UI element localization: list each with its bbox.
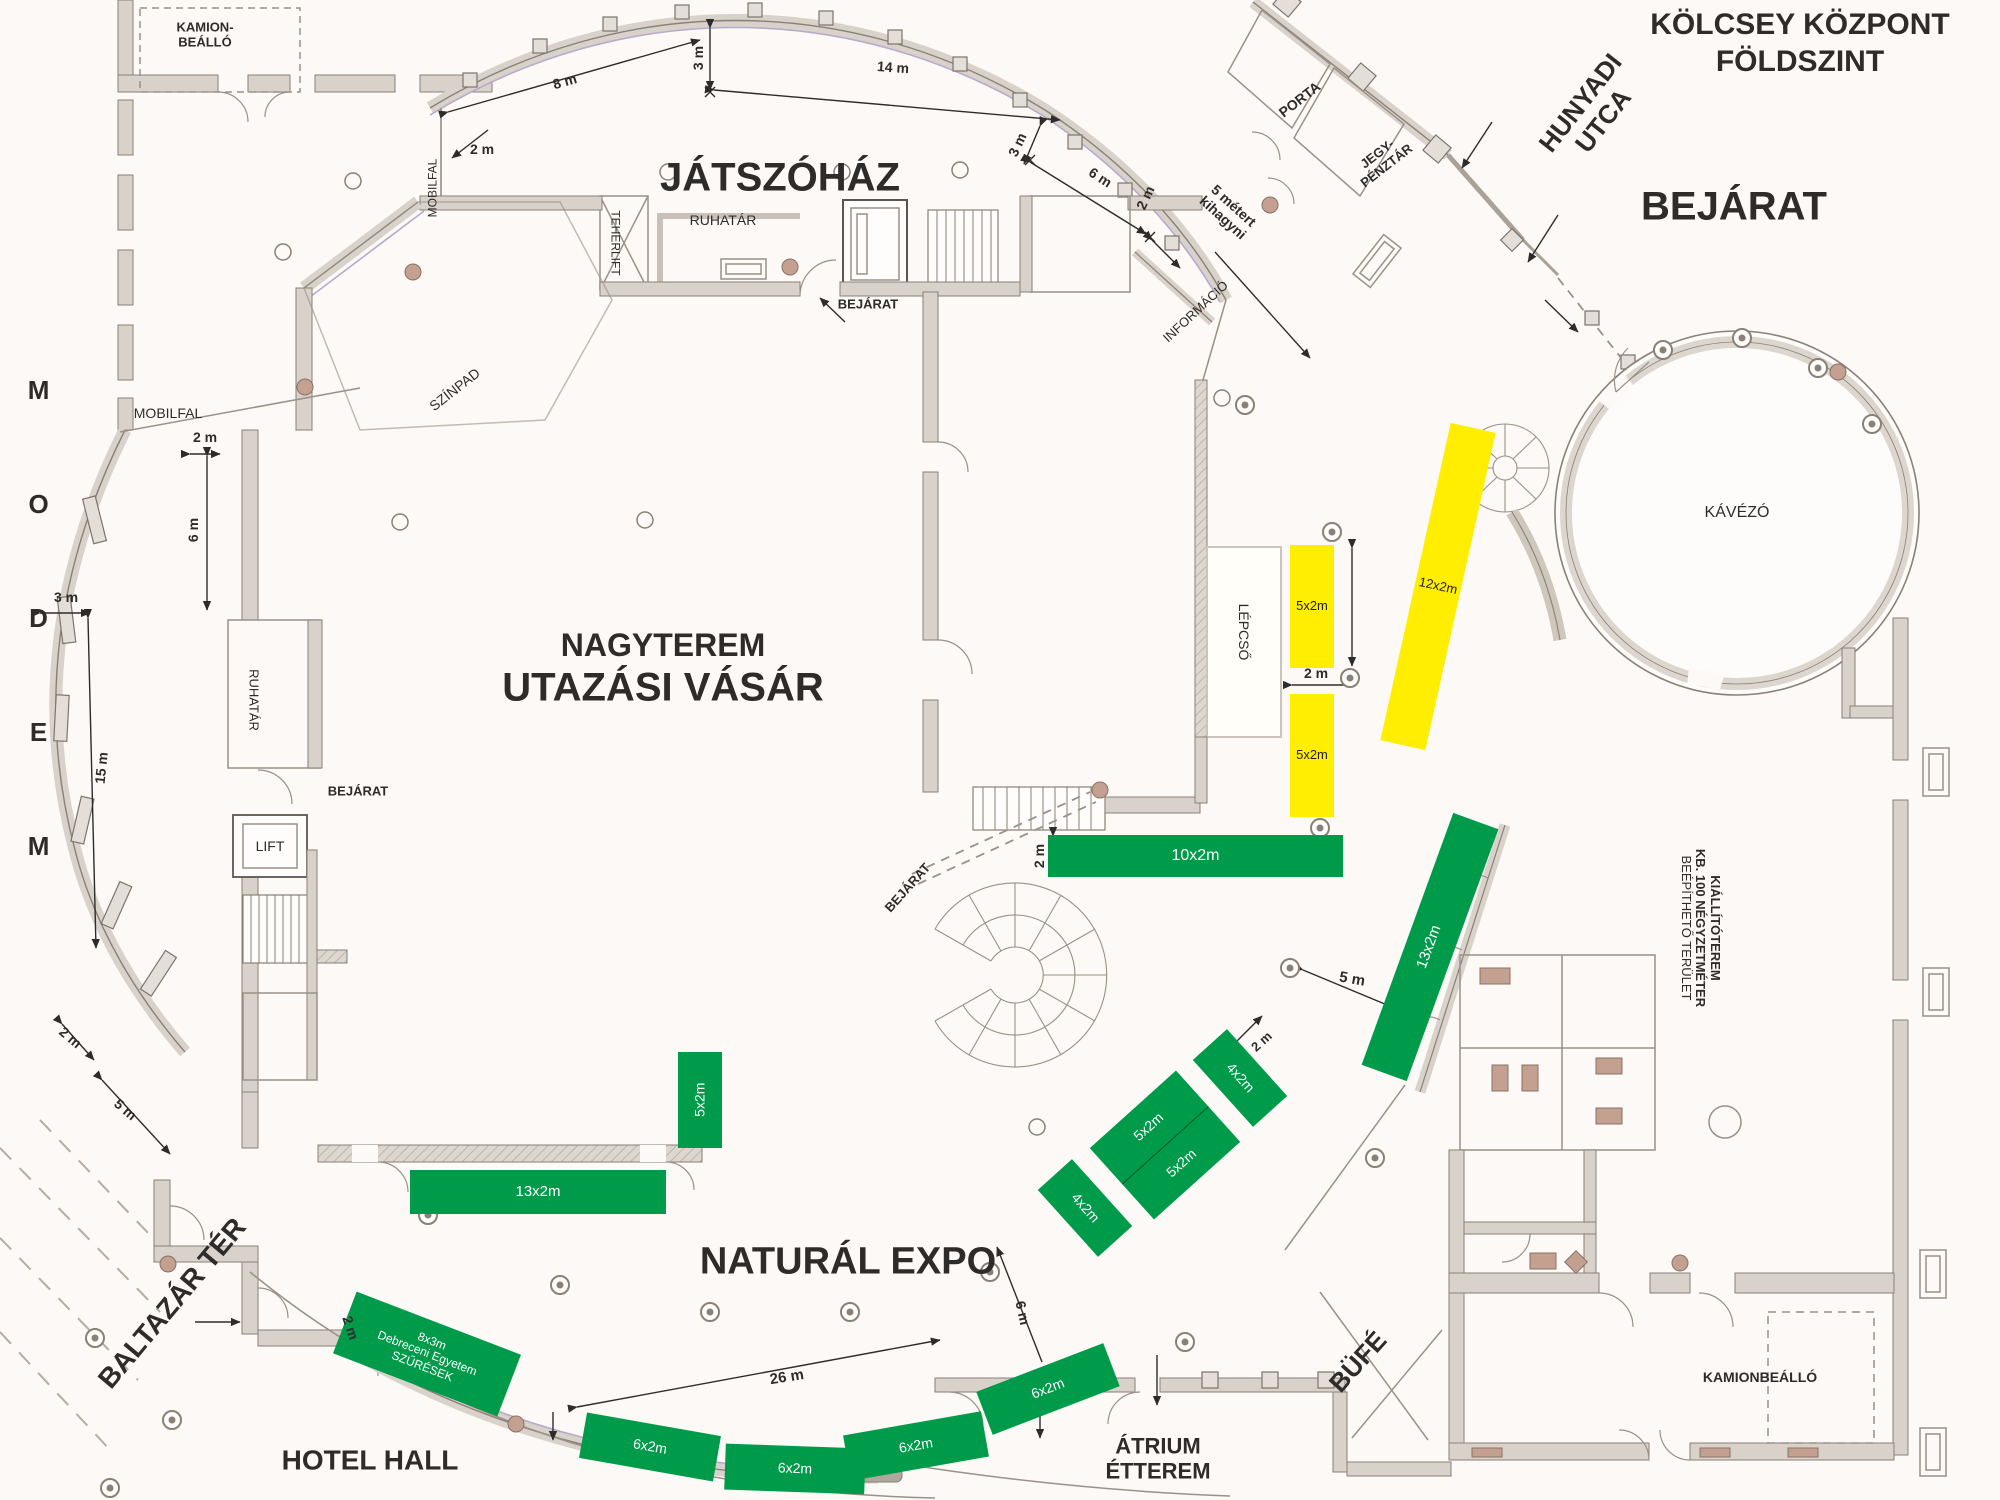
- wall-left-curve: [54, 430, 185, 1052]
- label-bejarat-main: BEJÁRAT: [1641, 185, 1827, 230]
- dim-3m-left: 3 m: [54, 590, 78, 606]
- booth-label: 5x2m: [692, 1083, 707, 1117]
- room-ruhatar-top: RUHATÁR: [690, 213, 757, 229]
- booth-label: 6x2m: [778, 1461, 813, 1478]
- dim-15m-left: 15 m: [93, 751, 112, 784]
- booth-label: 5x2m: [1131, 1110, 1167, 1144]
- label-bejarat-top: BEJÁRAT: [838, 298, 898, 313]
- booth-label: 5x2m: [1296, 599, 1328, 613]
- area-atrium-etterem: ÁTRIUMÉTTEREM: [1105, 1434, 1210, 1483]
- stairs-and-spiral-center: [912, 787, 1200, 1067]
- room-kamion-beallo-top: KAMION-BEÁLLÓ: [176, 20, 233, 49]
- page-title-line2: FÖLDSZINT: [1716, 45, 1884, 79]
- booth-label: 4x2m: [1068, 1190, 1102, 1226]
- floorplan-kolcsey-kozpont: 10x2m 13x2m 5x2m 5x2m 4x2m 4x2m 13x2m 5x…: [0, 0, 2000, 1500]
- booth-label: 6x2m: [898, 1435, 934, 1456]
- area-jatszohaz: JÁTSZÓHÁZ: [660, 156, 900, 201]
- booth-green-13x2m-horizontal: 13x2m: [410, 1170, 666, 1214]
- page-title-line1: KÖLCSEY KÖZPONT: [1650, 8, 1949, 42]
- street-modem: MODEM: [23, 375, 52, 945]
- booth-label: 5x2m: [1163, 1146, 1199, 1180]
- dim-3m-arc: 3 m: [691, 46, 707, 70]
- walls-right-building: [1842, 618, 1949, 1476]
- rooms-top-band: [420, 196, 1212, 322]
- dim-2m-mobilfal-top: 2 m: [470, 142, 494, 158]
- label-mobilfal-left: MOBILFAL: [134, 406, 202, 422]
- dim-14m: 14 m: [877, 59, 910, 77]
- booth-label: 12x2m: [1417, 575, 1458, 597]
- room-lift: LIFT: [256, 839, 285, 855]
- walls-entrance-ne: [1228, 0, 1648, 392]
- room-ruhatar-left: RUHATÁR: [246, 669, 261, 731]
- booth-green-6x2m-2: 6x2m: [724, 1444, 866, 1495]
- booth-label: 4x2m: [1223, 1060, 1257, 1096]
- booth-label: 6x2m: [632, 1436, 668, 1457]
- booth-label: 10x2m: [1171, 847, 1219, 865]
- dim-2m-left: 2 m: [193, 430, 217, 446]
- booth-label: 6x2m: [1029, 1376, 1066, 1403]
- room-lepcso: [1195, 380, 1281, 803]
- area-nagyterem: NAGYTEREM: [561, 628, 765, 664]
- area-hotel-hall: HOTEL HALL: [282, 1444, 459, 1475]
- label-mobilfal-top: MOBILFAL: [426, 159, 439, 218]
- area-natural-expo: NATURÁL EXPO: [700, 1241, 996, 1284]
- booth-green-10x2m: 10x2m: [1048, 835, 1343, 877]
- dim-6m-left: 6 m: [186, 518, 202, 542]
- area-kiallitoterem: KIÁLLÍTÓTEREM KB. 100 NÉGYZETMÉTER BEÉPÍ…: [1678, 849, 1722, 1007]
- booth-label: 13x2m: [1415, 923, 1446, 971]
- booth-yellow-5x2m-upper: 5x2m: [1290, 545, 1334, 668]
- dim-2m-10x2: 2 m: [1032, 844, 1048, 868]
- area-kamionbeallo-bottom: KAMIONBEÁLLÓ: [1703, 1370, 1817, 1386]
- booth-green-5x2m-vertical: 5x2m: [678, 1052, 722, 1148]
- room-kavezo: KÁVÉZÓ: [1705, 504, 1770, 522]
- columns: [86, 162, 1846, 1497]
- booth-label: 13x2m: [515, 1184, 560, 1201]
- booth-yellow-5x2m-lower: 5x2m: [1290, 694, 1334, 817]
- room-kavezo: [1545, 300, 1919, 695]
- area-utazasi-vasar: UTAZÁSI VÁSÁR: [502, 666, 823, 711]
- walls-bottom-right: [1285, 1085, 1894, 1460]
- label-bejarat-left: BEJÁRAT: [328, 785, 388, 800]
- room-lepcso: LÉPCSŐ: [1235, 604, 1251, 661]
- dim-2m-yellow: 2 m: [1304, 666, 1328, 682]
- label-teherlift: TEHERLIFT: [608, 210, 621, 275]
- booth-label: 5x2m: [1296, 748, 1328, 762]
